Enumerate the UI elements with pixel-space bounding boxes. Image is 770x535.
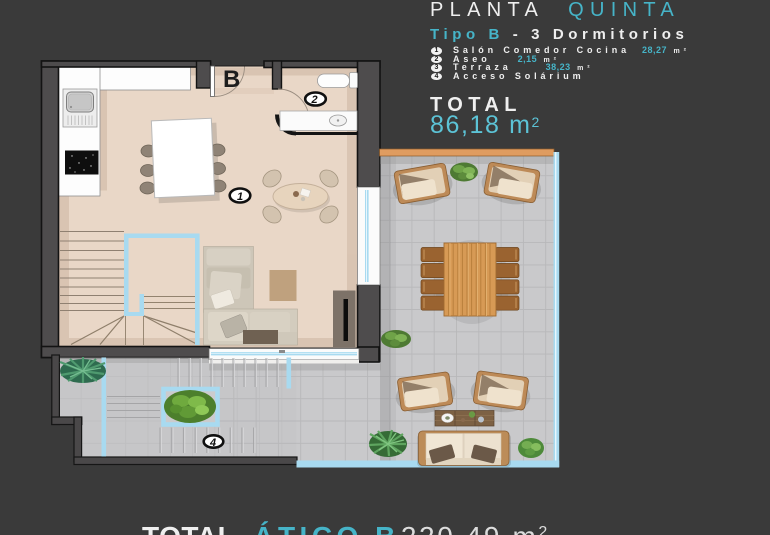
svg-text:4: 4 bbox=[209, 437, 216, 449]
svg-text:1: 1 bbox=[237, 191, 243, 203]
svg-text:2: 2 bbox=[311, 94, 318, 106]
svg-text:B: B bbox=[223, 66, 240, 93]
